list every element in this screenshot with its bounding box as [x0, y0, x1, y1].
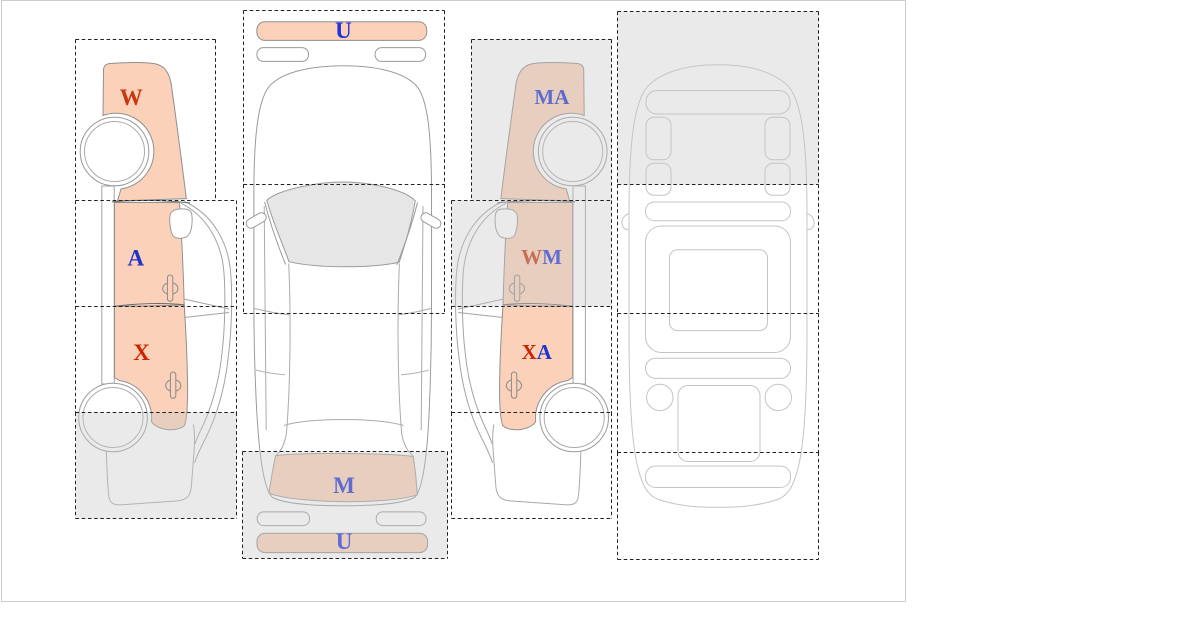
svg-text:U: U — [335, 18, 352, 43]
svg-text:XA: XA — [522, 340, 553, 364]
svg-text:W: W — [120, 85, 143, 110]
svg-text:X: X — [133, 340, 150, 365]
svg-text:A: A — [127, 245, 144, 270]
